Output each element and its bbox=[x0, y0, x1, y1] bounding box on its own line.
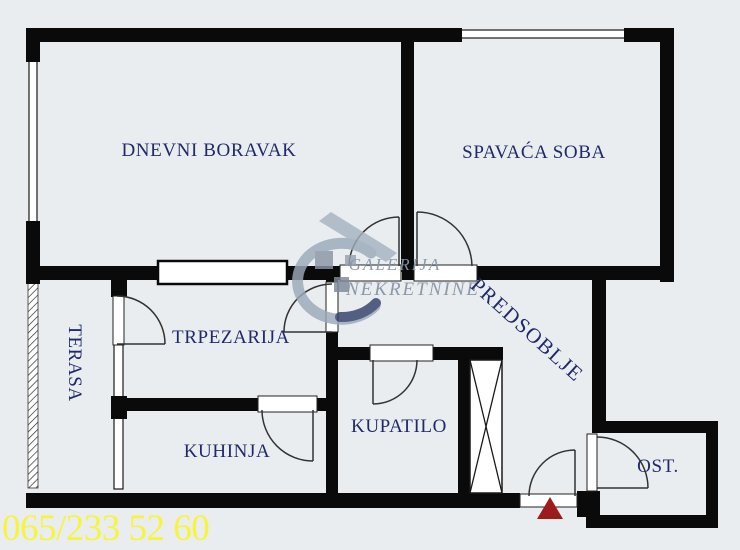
room-label-bathroom: KUPATILO bbox=[351, 416, 447, 438]
room-label-living-room: DNEVNI BORAVAK bbox=[121, 140, 296, 162]
door-openings bbox=[113, 265, 597, 507]
bathroom-door bbox=[373, 360, 417, 404]
room-label-kitchen: KUHINJA bbox=[184, 441, 271, 463]
room-label-storage: OST. bbox=[637, 456, 679, 478]
watermark-line1: GALERIJA bbox=[349, 255, 441, 275]
entrance-door bbox=[529, 450, 575, 496]
floor-plan-drawing bbox=[0, 0, 740, 550]
terrace-railing bbox=[28, 283, 38, 488]
room-label-dining-room: TRPEZARIJA bbox=[172, 327, 290, 349]
room-label-terrace: TERASA bbox=[63, 324, 85, 402]
phone-number: 065/233 52 60 bbox=[2, 510, 209, 548]
room-label-bedroom: SPAVAĆA SOBA bbox=[462, 142, 606, 164]
bedroom-window bbox=[458, 30, 628, 38]
radiator bbox=[158, 261, 287, 284]
floor-plan: GALERIJA NEKRETNINE DNEVNI BORAVAK SPAVA… bbox=[0, 0, 740, 550]
wardrobe-shaft bbox=[470, 360, 502, 493]
watermark-line2: NEKRETNINE bbox=[346, 279, 480, 301]
living-room-window bbox=[29, 56, 37, 225]
